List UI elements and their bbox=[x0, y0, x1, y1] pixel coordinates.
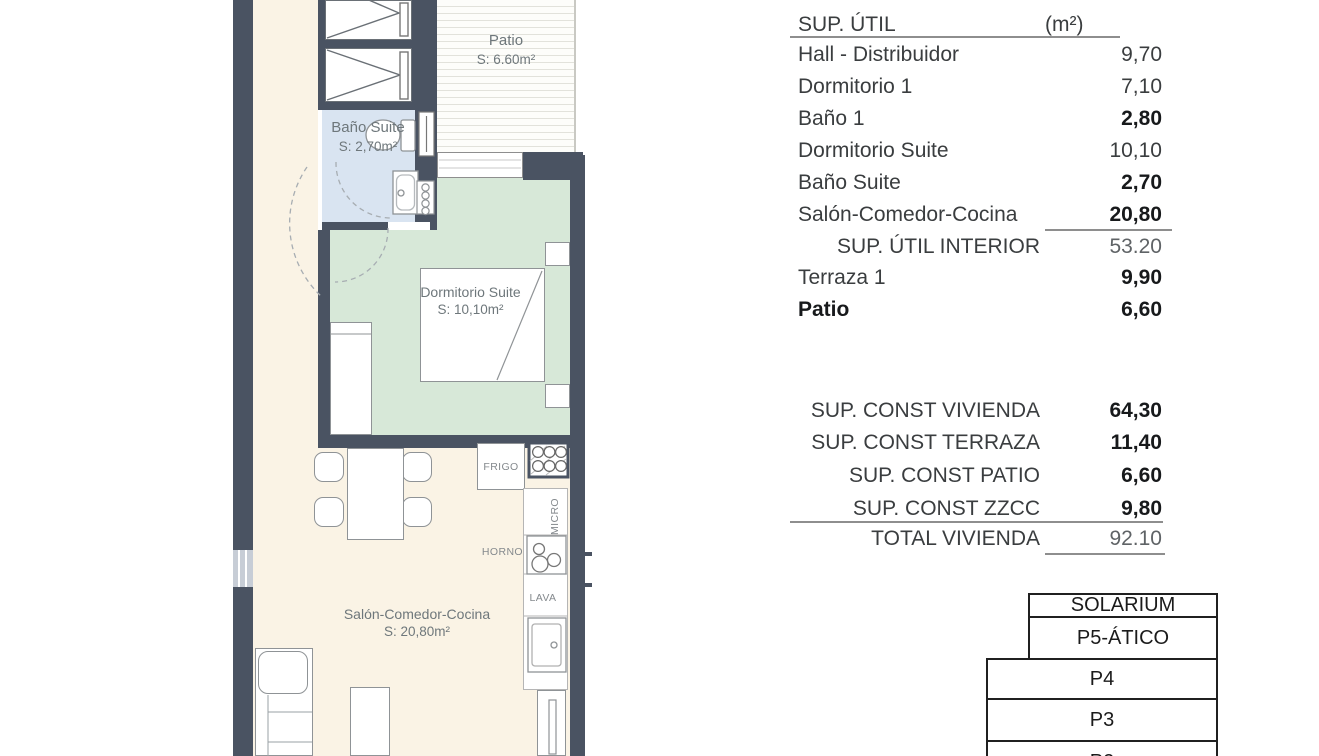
room-name: Baño Suite bbox=[320, 118, 416, 138]
room-area: S: 20,80m² bbox=[317, 623, 517, 641]
room-area: S: 2,70m² bbox=[320, 138, 416, 156]
vent-shaft-icon bbox=[529, 443, 568, 477]
micro-label: MICRO bbox=[549, 489, 561, 535]
room-area: S: 6.60m² bbox=[437, 51, 575, 69]
bath-suite-label: Baño Suite S: 2,70m² bbox=[320, 118, 416, 155]
sofa-lines bbox=[268, 695, 312, 756]
window-panes bbox=[439, 160, 521, 168]
patio-label: Patio S: 6.60m² bbox=[437, 31, 575, 68]
door-swing-arcs bbox=[290, 162, 391, 297]
oven-label: HORNO bbox=[477, 546, 523, 558]
fridge-label: FRIGO bbox=[477, 461, 525, 473]
room-area: S: 10,10m² bbox=[398, 301, 543, 319]
dishwasher-label: LAVA bbox=[523, 592, 563, 604]
bedroom-suite-label: Dormitorio Suite S: 10,10m² bbox=[398, 283, 543, 319]
room-name: Patio bbox=[437, 31, 575, 51]
plan-linework bbox=[0, 0, 1319, 756]
sink-icon bbox=[528, 618, 566, 672]
room-name: Salón-Comedor-Cocina bbox=[317, 605, 517, 623]
elevator-symbol-icon bbox=[327, 0, 408, 100]
sliding-panel-leaf bbox=[549, 700, 556, 754]
bath-window-icon bbox=[419, 112, 434, 156]
washbasin-icon bbox=[393, 171, 418, 214]
floor-plan-sheet: Patio S: 6.60m² Baño Suite S: 2,70m² Dor… bbox=[0, 0, 1319, 756]
room-name: Dormitorio Suite bbox=[398, 283, 543, 301]
living-room-label: Salón-Comedor-Cocina S: 20,80m² bbox=[317, 605, 517, 641]
wall-ticks bbox=[583, 552, 592, 587]
duct-shaft-icon bbox=[417, 181, 434, 215]
hob-icon bbox=[527, 536, 566, 574]
